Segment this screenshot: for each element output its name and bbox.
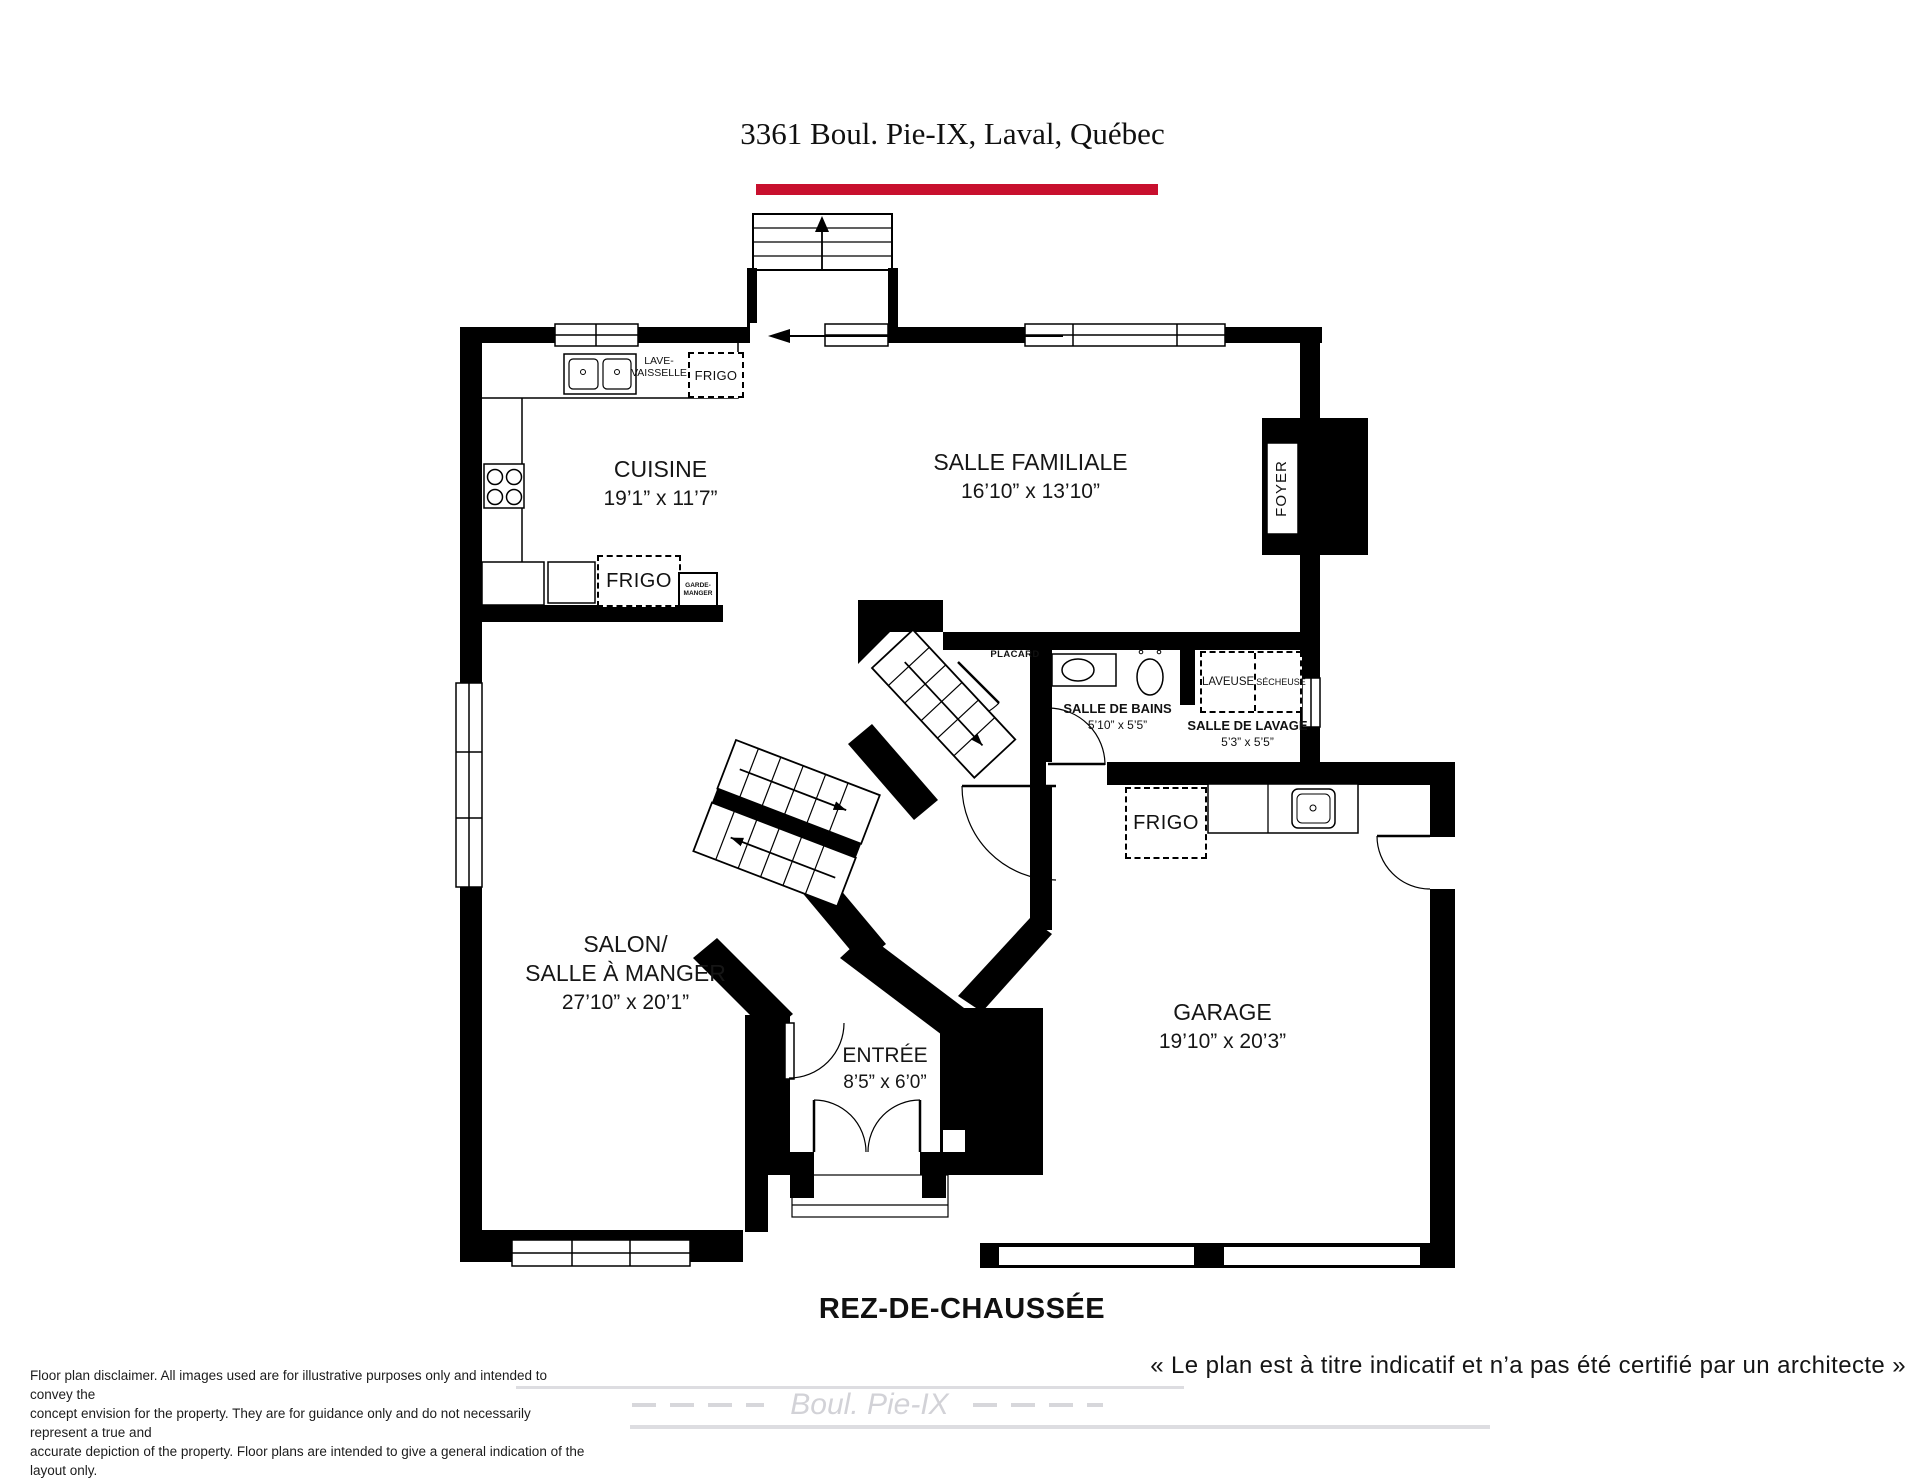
washer-dryer-box: LAVEUSE SÉCHEUSE [1200, 651, 1302, 713]
floor-plan-page: 3361 Boul. Pie-IX, Laval, Québec [0, 0, 1920, 1483]
garage-dims: 19’10” x 20’3” [1120, 1027, 1325, 1056]
room-label-cuisine: CUISINE 19’1” x 11’7” [558, 455, 763, 513]
fridge-kitchen-bottom-box: FRIGO [597, 555, 681, 607]
room-label-salle-de-bains: SALLE DE BAINS 5’10” x 5’5” [1045, 700, 1190, 734]
salle-de-lavage-name: SALLE DE LAVAGE [1175, 717, 1320, 734]
garage-counter-sink [1208, 784, 1358, 833]
dishwasher-line2: VAISSELLE [628, 367, 690, 379]
salle-familiale-dims: 16’10” x 13’10” [903, 477, 1158, 506]
washer-label: LAVEUSE [1202, 653, 1254, 711]
placard-label: PLACARD [980, 649, 1050, 660]
disclaimer-line3: accurate depiction of the property. Floo… [30, 1442, 590, 1480]
fridge-kitchen-top-box: FRIGO [688, 352, 744, 398]
room-label-garage: GARAGE 19’10” x 20’3” [1120, 998, 1325, 1056]
dishwasher-label: LAVE- VAISSELLE [628, 355, 690, 379]
fridge-garage-label: FRIGO [1133, 812, 1199, 835]
room-label-salle-de-lavage: SALLE DE LAVAGE 5’3” x 5’5” [1175, 717, 1320, 751]
fridge-kitchen-bottom-label: FRIGO [606, 570, 672, 593]
road-bottom-line [630, 1425, 1490, 1429]
street-name-watermark: Boul. Pie-IX [787, 1388, 952, 1422]
cuisine-dims: 19’1” x 11’7” [558, 484, 763, 513]
entree-dims: 8’5” x 6’0” [810, 1069, 960, 1096]
disclaimer-text: Floor plan disclaimer. All images used a… [30, 1366, 590, 1483]
entree-name: ENTRÉE [810, 1042, 960, 1069]
walls [460, 268, 1455, 1268]
fridge-garage-box: FRIGO [1125, 787, 1207, 859]
foyer-text: FOYER [1273, 460, 1290, 517]
floor-plan-drawing [0, 0, 1920, 1483]
double-sink-icon [564, 354, 636, 394]
architect-quote: « Le plan est à titre indicatif et n’a p… [1150, 1352, 1906, 1380]
dishwasher-line1: LAVE- [628, 355, 690, 367]
disclaimer-line1: Floor plan disclaimer. All images used a… [30, 1366, 590, 1404]
pantry-line2: MANGER [684, 590, 713, 598]
stove-icon [484, 464, 524, 508]
front-porch [790, 1175, 948, 1217]
floor-title: REZ-DE-CHAUSSÉE [792, 1293, 1132, 1326]
room-label-salon: SALON/ SALLE À MANGER 27’10” x 20’1” [508, 930, 743, 1017]
pantry-line1: GARDE- [684, 582, 713, 590]
room-label-salle-familiale: SALLE FAMILIALE 16’10” x 13’10” [903, 448, 1158, 506]
pantry-box: GARDE- MANGER [678, 572, 718, 607]
salon-name-line1: SALON/ [508, 930, 743, 959]
cuisine-name: CUISINE [558, 455, 763, 484]
staircase-basement-icon [693, 740, 879, 906]
room-label-entree: ENTRÉE 8’5” x 6’0” [810, 1042, 960, 1096]
disclaimer-line2: concept envision for the property. They … [30, 1404, 590, 1442]
fridge-kitchen-top-label: FRIGO [695, 368, 738, 383]
wall-notch [943, 1130, 965, 1152]
foyer-label: FOYER [1262, 441, 1300, 536]
road-dashes-left [632, 1403, 764, 1407]
salle-de-lavage-dims: 5’3” x 5’5” [1175, 734, 1320, 751]
exterior-entry-stairs-icon [753, 214, 892, 270]
salle-familiale-name: SALLE FAMILIALE [903, 448, 1158, 477]
garage-name: GARAGE [1120, 998, 1325, 1027]
bathroom-fixtures [1052, 650, 1163, 695]
salon-name-line2: SALLE À MANGER [508, 959, 743, 988]
dryer-label: SÉCHEUSE [1254, 653, 1306, 711]
salon-dims: 27’10” x 20’1” [508, 988, 743, 1017]
salle-de-bains-name: SALLE DE BAINS [1045, 700, 1190, 717]
salle-de-bains-dims: 5’10” x 5’5” [1045, 717, 1190, 734]
french-doors-icon [814, 1100, 920, 1152]
road-dashes-right [973, 1403, 1103, 1407]
